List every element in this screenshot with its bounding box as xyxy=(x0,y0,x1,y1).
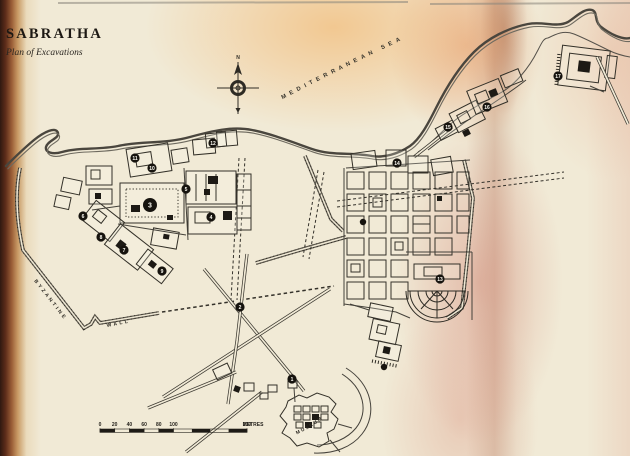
site-marker-dot xyxy=(381,364,387,370)
site-marker-15: 15 xyxy=(443,122,452,131)
scan-artifacts xyxy=(58,2,630,4)
svg-text:2: 2 xyxy=(239,305,242,311)
svg-text:14: 14 xyxy=(394,161,400,167)
svg-text:10: 10 xyxy=(149,166,155,172)
svg-text:17: 17 xyxy=(555,74,561,80)
fort-building xyxy=(556,45,628,124)
sea-label: MEDITERRANEAN SEA xyxy=(281,35,406,101)
map-title: SABRATHA xyxy=(6,26,103,42)
site-marker-5: 5 xyxy=(181,184,190,193)
scale-tick-60: 60 xyxy=(141,422,147,428)
site-marker-6: 6 xyxy=(78,211,87,220)
svg-text:3: 3 xyxy=(148,203,152,210)
compass-rose: N xyxy=(217,55,259,114)
scale-tick-20: 20 xyxy=(112,422,118,428)
scanned-map-page: MUSEUM N MEDITERRANEAN SEA BYZANTINE WAL… xyxy=(0,0,630,456)
site-marker-1: 1 xyxy=(287,374,296,383)
scale-tick-40: 40 xyxy=(127,422,133,428)
site-markers: 1234567891011121314151617 xyxy=(78,71,562,383)
site-marker-9: 9 xyxy=(157,266,166,275)
site-marker-11: 11 xyxy=(130,153,139,162)
site-marker-8: 8 xyxy=(96,232,105,241)
map-subtitle: Plan of Excavations xyxy=(5,47,83,58)
site-marker-12: 12 xyxy=(208,138,217,147)
svg-text:6: 6 xyxy=(82,214,85,220)
svg-text:12: 12 xyxy=(210,141,216,147)
scale-tick-80: 80 xyxy=(156,422,162,428)
svg-text:15: 15 xyxy=(445,125,451,131)
site-marker-4: 4 xyxy=(206,212,215,221)
svg-text:8: 8 xyxy=(100,235,103,241)
svg-text:16: 16 xyxy=(484,105,490,111)
svg-text:11: 11 xyxy=(132,156,138,162)
grid-quarter xyxy=(344,150,470,318)
scale-unit-label: METRES xyxy=(243,422,265,428)
site-marker-17: 17 xyxy=(553,71,562,80)
northeast-complexes xyxy=(428,69,526,150)
theatre xyxy=(406,252,472,322)
svg-text:1: 1 xyxy=(291,377,294,383)
svg-text:9: 9 xyxy=(161,269,164,275)
sabratha-excavation-plan-map: MUSEUM N MEDITERRANEAN SEA BYZANTINE WAL… xyxy=(0,0,630,456)
museum-complex: MUSEUM xyxy=(280,381,338,447)
site-marker-dot xyxy=(360,219,366,225)
site-marker-10: 10 xyxy=(147,163,156,172)
scale-tick-0: 0 xyxy=(99,422,102,428)
site-marker-14: 14 xyxy=(392,158,401,167)
site-marker-2: 2 xyxy=(235,302,244,311)
compass-north-label: N xyxy=(236,55,240,61)
site-marker-7: 7 xyxy=(119,245,128,254)
svg-text:13: 13 xyxy=(437,277,443,283)
site-marker-16: 16 xyxy=(482,102,491,111)
site-marker-3: 3 xyxy=(143,198,157,212)
scale-tick-100: 100 xyxy=(169,422,178,428)
scale-bar: 020406080100200METRES xyxy=(99,422,264,432)
south-structure xyxy=(350,303,401,366)
svg-text:4: 4 xyxy=(210,215,213,221)
svg-text:7: 7 xyxy=(123,248,126,254)
west-quarter-ruins xyxy=(54,130,277,399)
svg-text:5: 5 xyxy=(185,187,188,193)
dashed-roads xyxy=(231,158,564,300)
site-marker-13: 13 xyxy=(435,274,444,283)
